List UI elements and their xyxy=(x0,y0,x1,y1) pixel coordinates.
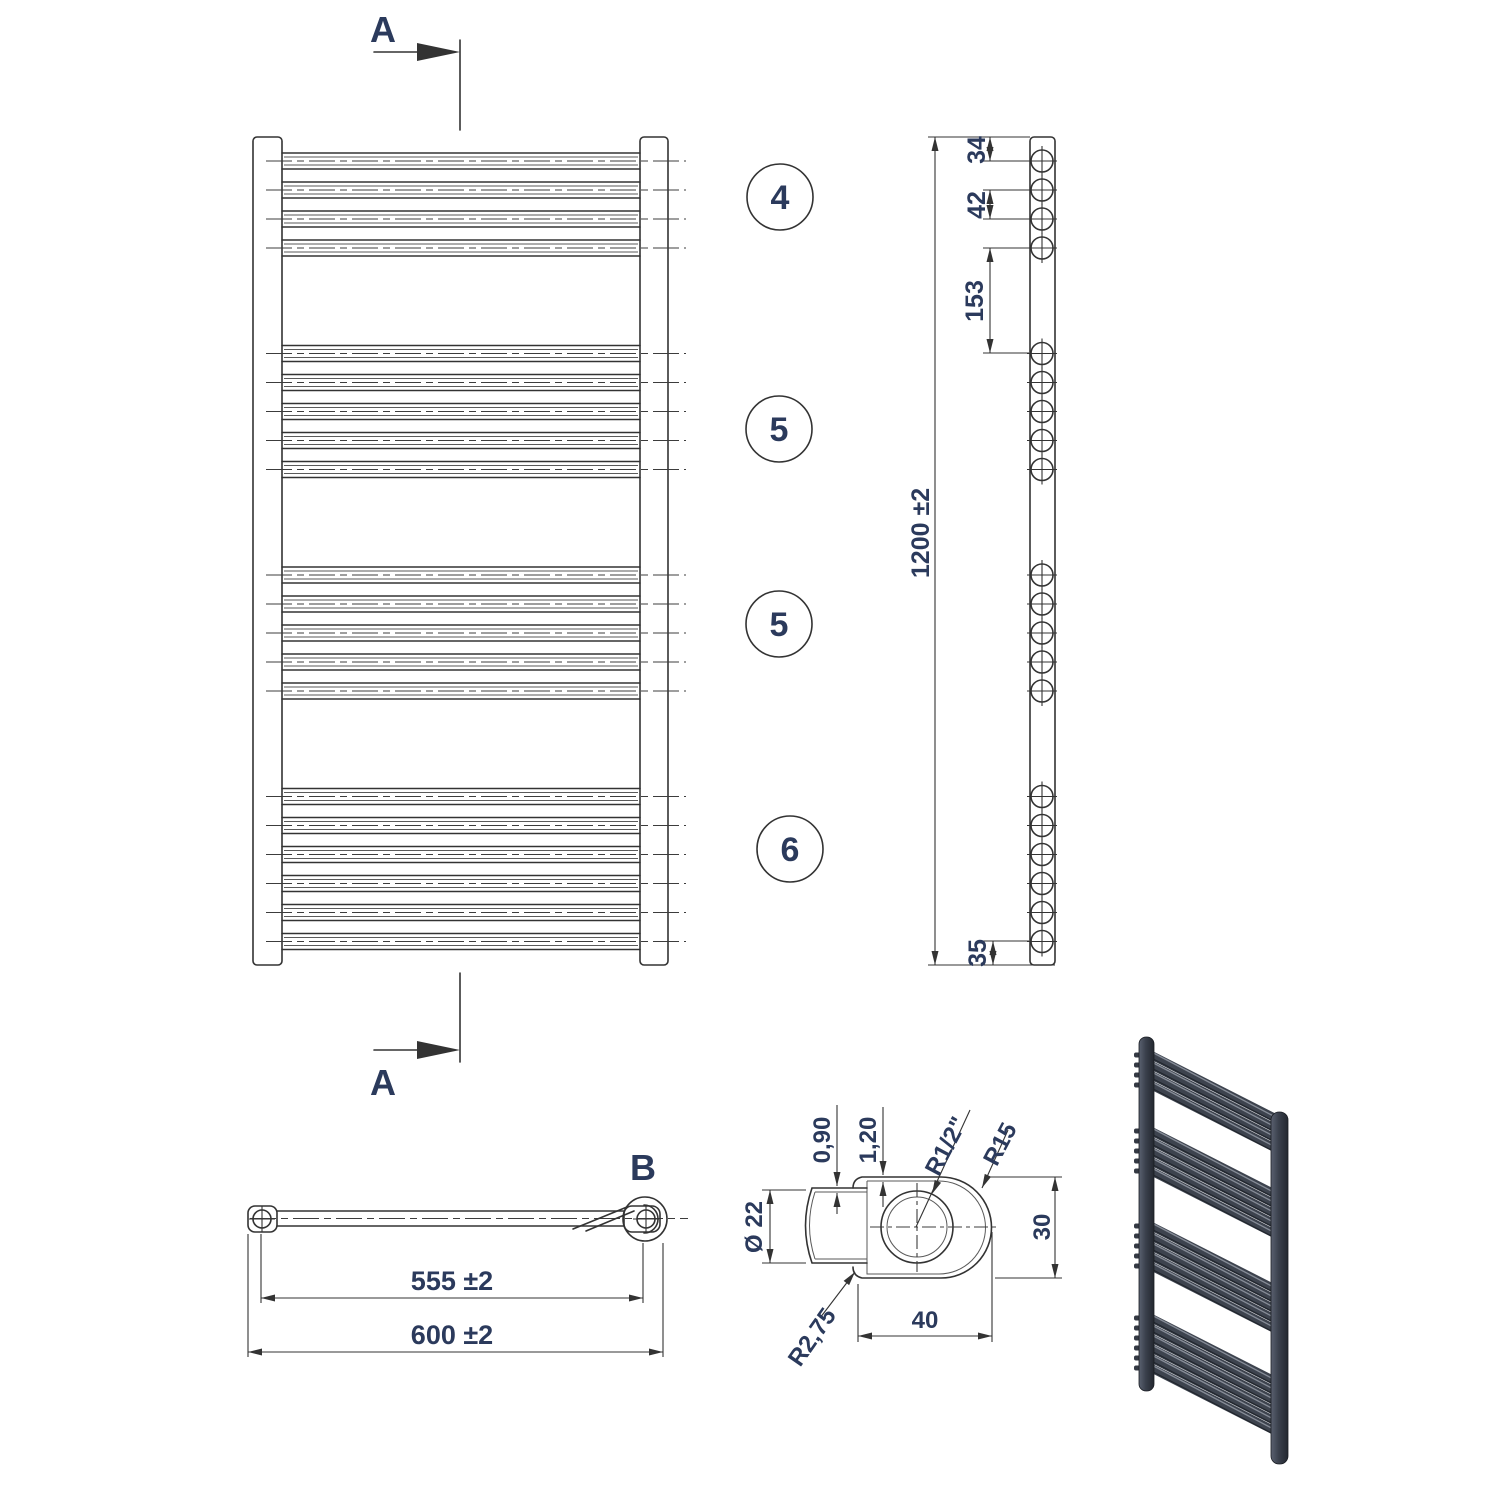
arrowhead xyxy=(1052,1177,1059,1191)
dim-height: 1200 ±2 xyxy=(907,488,935,578)
front-left-post xyxy=(253,137,282,965)
dim-corner-radius: R2,75 xyxy=(783,1303,842,1371)
render-right-post xyxy=(1271,1112,1288,1464)
front-view: A A xyxy=(253,9,686,1103)
arrowhead xyxy=(261,1295,275,1302)
technical-drawing-page: A A 4 5 5 6 1200 ±2 34 42 xyxy=(0,0,1500,1500)
side-view: 1200 ±2 34 42 153 35 xyxy=(907,136,1057,967)
front-right-post xyxy=(640,137,668,965)
render-left-post xyxy=(1139,1037,1154,1391)
detail-callout-label: B xyxy=(630,1147,656,1188)
side-tube-ends xyxy=(1027,146,1057,957)
count-label-1: 4 xyxy=(771,179,790,217)
section-marker-bottom: A xyxy=(370,973,460,1103)
arrowhead xyxy=(858,1333,872,1340)
arrowhead xyxy=(932,137,939,151)
section-arrow-bottom xyxy=(417,1041,460,1059)
dim-bottom-offset: 35 xyxy=(964,939,992,967)
count-label-3: 5 xyxy=(770,606,789,644)
section-marker-top: A xyxy=(370,9,460,130)
bar-count-callouts: 4 5 5 6 xyxy=(746,164,823,882)
render-bars xyxy=(1151,1053,1275,1435)
arrowhead xyxy=(834,1172,841,1186)
arrowhead xyxy=(987,339,994,353)
arrowhead xyxy=(979,1174,991,1190)
arrowhead xyxy=(880,1182,887,1196)
arrowhead xyxy=(767,1249,774,1263)
arrowhead xyxy=(987,248,994,262)
render-3d xyxy=(1134,1037,1288,1464)
dim-group-gap: 153 xyxy=(961,280,989,322)
render-bar-shadow xyxy=(1152,1068,1274,1131)
detail-b-view: 0,90 1,20 R1/2" R15 Ø 22 30 40 R2,75 xyxy=(741,1105,1062,1371)
section-label-bottom: A xyxy=(370,1062,396,1103)
front-bars xyxy=(266,153,686,950)
dim-end-radius: R15 xyxy=(978,1118,1023,1170)
dim-inner-width: 555 ±2 xyxy=(411,1266,493,1296)
arrowhead xyxy=(978,1333,992,1340)
section-label-top: A xyxy=(370,9,396,50)
dim-collector-height: 30 xyxy=(1029,1214,1056,1241)
arrowhead xyxy=(1052,1264,1059,1278)
dim-collector-width: 40 xyxy=(912,1307,939,1334)
arrowhead xyxy=(834,1193,841,1207)
arrowhead xyxy=(767,1190,774,1204)
dim-outer-width: 600 ±2 xyxy=(411,1320,493,1350)
arrowhead xyxy=(880,1161,887,1175)
arrowhead xyxy=(844,1270,858,1285)
arrowhead xyxy=(649,1349,663,1356)
section-arrow-top xyxy=(417,43,460,61)
arrowhead xyxy=(932,951,939,965)
count-label-2: 5 xyxy=(770,411,789,449)
count-label-4: 6 xyxy=(781,831,800,869)
dim-collector-wall: 1,20 xyxy=(855,1117,882,1164)
dim-tube-wall: 0,90 xyxy=(809,1117,836,1164)
dim-thread: R1/2" xyxy=(920,1112,973,1179)
arrowhead xyxy=(629,1295,643,1302)
arrowhead xyxy=(248,1349,262,1356)
plan-view: B 555 ±2 600 ±2 xyxy=(248,1147,688,1357)
radiator-technical-drawing: A A 4 5 5 6 1200 ±2 34 42 xyxy=(0,0,1500,1500)
dim-tube-dia: Ø 22 xyxy=(741,1201,768,1253)
